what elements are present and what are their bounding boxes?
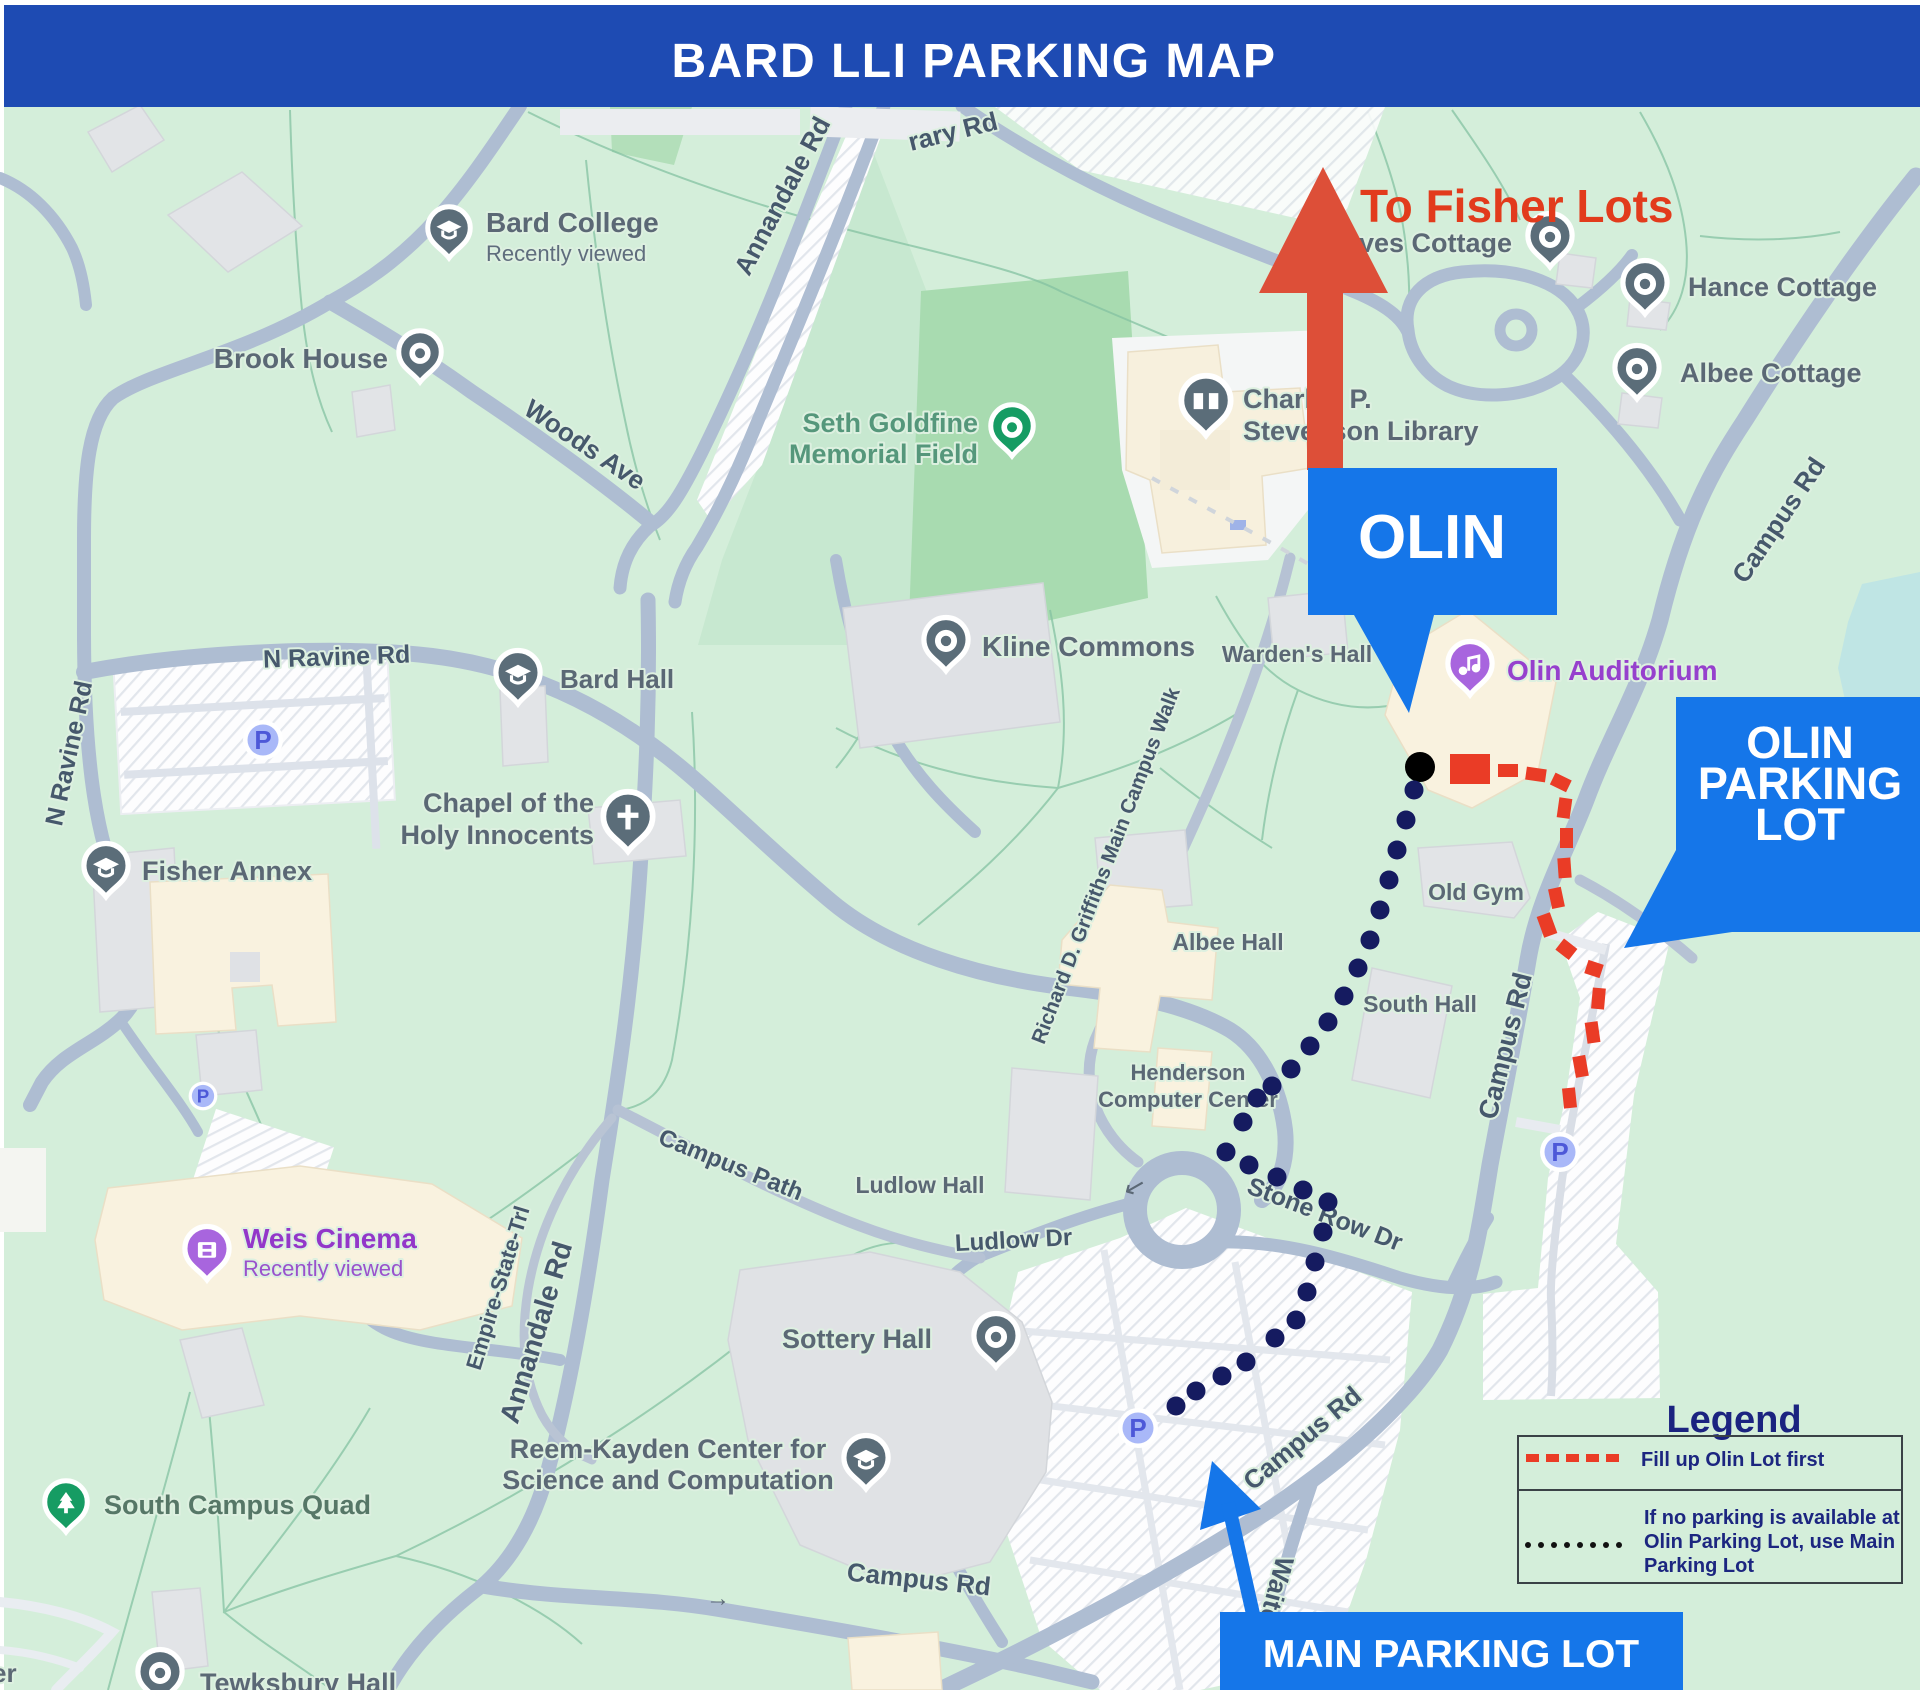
svg-text:Recently viewed: Recently viewed	[243, 1256, 403, 1281]
svg-text:Old Gym: Old Gym	[1428, 879, 1524, 905]
svg-text:Weis Cinema: Weis Cinema	[243, 1223, 417, 1254]
svg-text:Legend: Legend	[1666, 1399, 1801, 1441]
svg-text:Holy Innocents: Holy Innocents	[400, 820, 594, 850]
svg-text:Bard College: Bard College	[486, 207, 659, 238]
svg-text:LOT: LOT	[1755, 799, 1845, 850]
svg-text:Memorial Field: Memorial Field	[789, 439, 978, 469]
svg-text:To Fisher Lots: To Fisher Lots	[1360, 180, 1674, 232]
svg-text:BARD LLI PARKING MAP: BARD LLI PARKING MAP	[671, 35, 1276, 88]
svg-text:Fisher Annex: Fisher Annex	[142, 856, 312, 886]
svg-text:OLIN: OLIN	[1358, 503, 1506, 572]
svg-text:Reem-Kayden Center for: Reem-Kayden Center for	[510, 1434, 827, 1464]
svg-text:South Campus Quad: South Campus Quad	[104, 1490, 371, 1520]
svg-text:Bard Hall: Bard Hall	[560, 664, 674, 694]
svg-text:Henderson: Henderson	[1131, 1060, 1246, 1085]
svg-text:Olin Auditorium: Olin Auditorium	[1507, 655, 1718, 686]
svg-text:Hance Cottage: Hance Cottage	[1688, 272, 1877, 302]
svg-text:N Ravine Rd: N Ravine Rd	[263, 640, 411, 673]
svg-text:South Hall: South Hall	[1363, 991, 1477, 1017]
svg-text:Fill up Olin Lot first: Fill up Olin Lot first	[1641, 1449, 1825, 1471]
svg-text:Stevenson Library: Stevenson Library	[1243, 416, 1479, 446]
svg-text:Brook House: Brook House	[214, 343, 388, 374]
svg-text:Science and Computation: Science and Computation	[502, 1465, 834, 1495]
svg-text:Sottery Hall: Sottery Hall	[782, 1324, 932, 1354]
svg-text:Warden's Hall: Warden's Hall	[1222, 641, 1372, 667]
svg-text:Albee Cottage: Albee Cottage	[1680, 358, 1862, 388]
svg-text:Albee Hall: Albee Hall	[1172, 929, 1283, 955]
svg-text:→: →	[706, 1585, 730, 1612]
svg-text:er: er	[0, 1658, 17, 1688]
svg-text:If no parking is available at: If no parking is available at	[1644, 1507, 1900, 1529]
svg-text:Recently viewed: Recently viewed	[486, 241, 646, 266]
svg-text:Chapel of the: Chapel of the	[423, 788, 594, 818]
svg-text:Parking Lot: Parking Lot	[1644, 1555, 1754, 1577]
svg-text:Kline Commons: Kline Commons	[982, 631, 1195, 662]
svg-text:ves Cottage: ves Cottage	[1359, 228, 1512, 258]
svg-text:Ludlow Hall: Ludlow Hall	[855, 1172, 984, 1198]
svg-text:MAIN PARKING LOT: MAIN PARKING LOT	[1263, 1633, 1639, 1676]
svg-text:Tewksbury Hall: Tewksbury Hall	[200, 1668, 396, 1690]
svg-text:Seth Goldfine: Seth Goldfine	[803, 408, 979, 438]
svg-text:Olin Parking Lot, use Main: Olin Parking Lot, use Main	[1644, 1531, 1895, 1553]
